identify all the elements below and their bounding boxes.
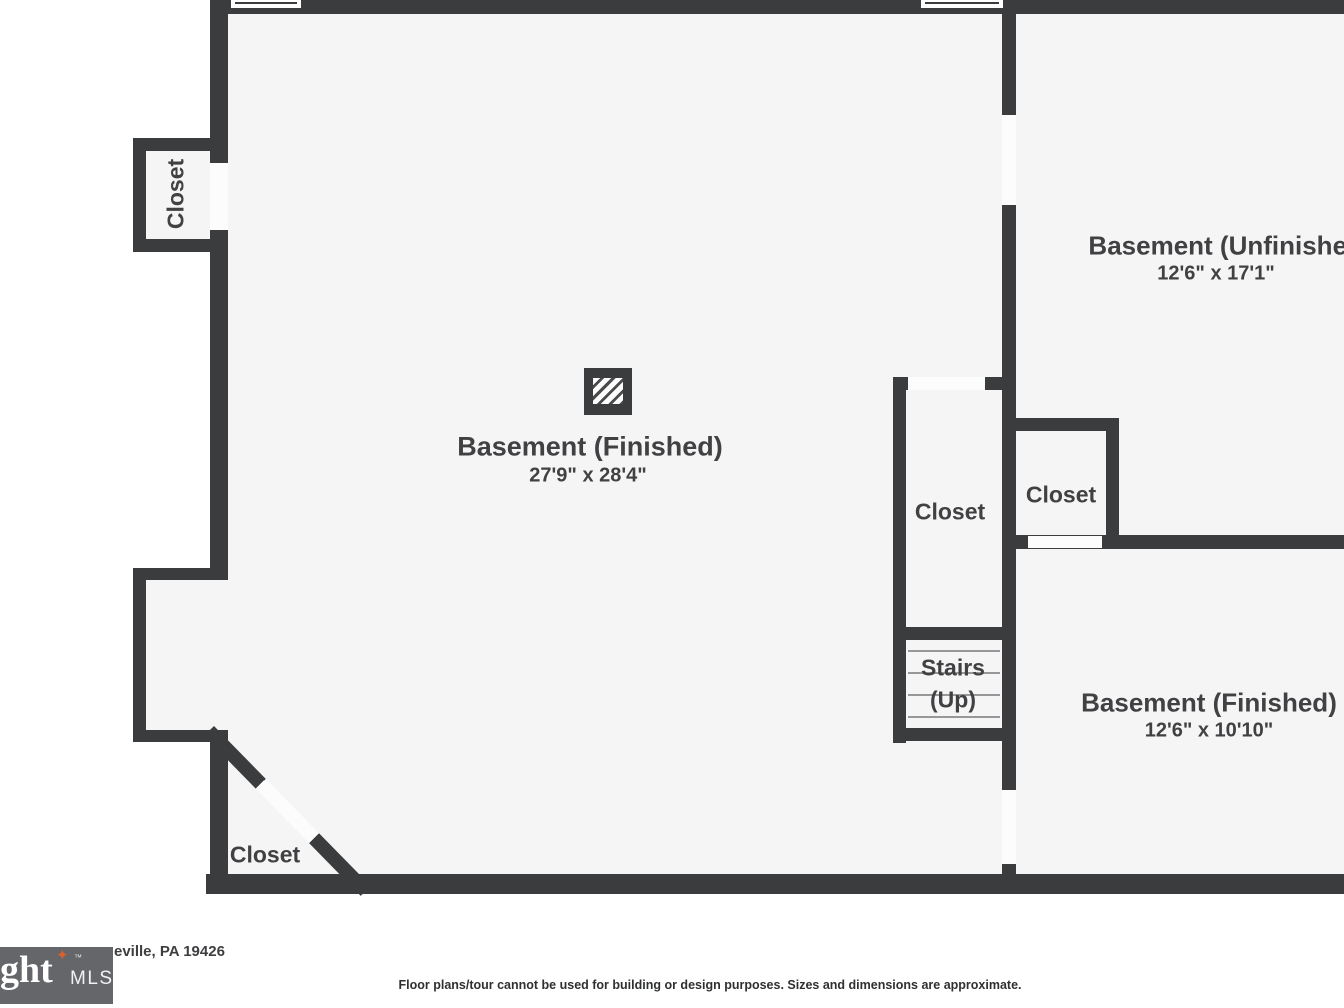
room-fill-alcove xyxy=(146,580,228,730)
wall-segment-alcove-top xyxy=(133,568,228,580)
wall-segment-closet-right-top xyxy=(1008,418,1119,431)
address-text: eville, PA 19426 xyxy=(114,943,225,960)
wall-segment-left xyxy=(210,0,228,568)
closet-label-bottom-left: Closet xyxy=(230,842,300,869)
column-hatch-pattern xyxy=(593,378,623,404)
wall-segment-alcove-left xyxy=(133,568,146,742)
wall-segment-bottom xyxy=(206,874,1344,894)
stairs-direction-label: (Up) xyxy=(930,687,976,714)
room-dims-basement-finished-br: 12'6" x 10'10" xyxy=(1145,720,1274,743)
closet-label-middle: Closet xyxy=(915,499,985,526)
door-opening-closet-left xyxy=(210,163,228,230)
logo-text-mls: MLS xyxy=(70,968,113,990)
wall-segment-top xyxy=(210,0,1344,14)
wall-segment-closet-left-bottom xyxy=(133,239,214,252)
wall-segment-closet-middle-left xyxy=(893,377,906,743)
room-dims-basement-finished-main: 27'9" x 28'4" xyxy=(529,465,646,488)
brightmls-logo: ght ✦ ™ MLS xyxy=(0,947,113,1004)
window-pane-line xyxy=(925,2,999,4)
room-label-basement-unfinished: Basement (Unfinished) xyxy=(1088,231,1344,262)
door-opening-closet-middle xyxy=(908,377,985,390)
window-symbol-left xyxy=(229,0,303,10)
window-pane-line xyxy=(235,2,297,4)
window-symbol-right xyxy=(919,0,1005,10)
door-opening-divider-upper xyxy=(1002,115,1016,205)
stairs-label: Stairs xyxy=(921,655,985,682)
stair-tread-line xyxy=(908,716,1000,718)
room-label-basement-finished-br: Basement (Finished) xyxy=(1081,688,1337,719)
wall-segment-alcove-bottom xyxy=(133,730,211,742)
disclaimer-text: Floor plans/tour cannot be used for buil… xyxy=(398,978,1021,992)
stair-tread-line xyxy=(908,650,1000,652)
logo-star-icon: ✦ xyxy=(56,947,69,964)
closet-label-left: Closet xyxy=(163,159,190,229)
room-label-basement-finished-main: Basement (Finished) xyxy=(457,432,723,463)
room-dims-basement-unfinished: 12'6" x 17'1" xyxy=(1157,263,1274,286)
logo-trademark: ™ xyxy=(74,953,82,962)
door-opening-divider-lower xyxy=(1002,790,1016,864)
logo-text-serif: ght xyxy=(0,948,53,992)
wall-segment-closet-right-side xyxy=(1106,418,1119,549)
wall-segment-closet-left-side xyxy=(133,138,146,252)
floorplan-canvas: Basement (Finished) 27'9" x 28'4" Baseme… xyxy=(0,0,1344,1008)
support-column-icon xyxy=(584,368,632,415)
wall-segment-stairs-bottom xyxy=(893,728,1003,741)
closet-label-right: Closet xyxy=(1026,482,1096,509)
wall-segment-stairs-top xyxy=(893,627,1003,640)
door-opening-closet-right xyxy=(1028,536,1102,548)
